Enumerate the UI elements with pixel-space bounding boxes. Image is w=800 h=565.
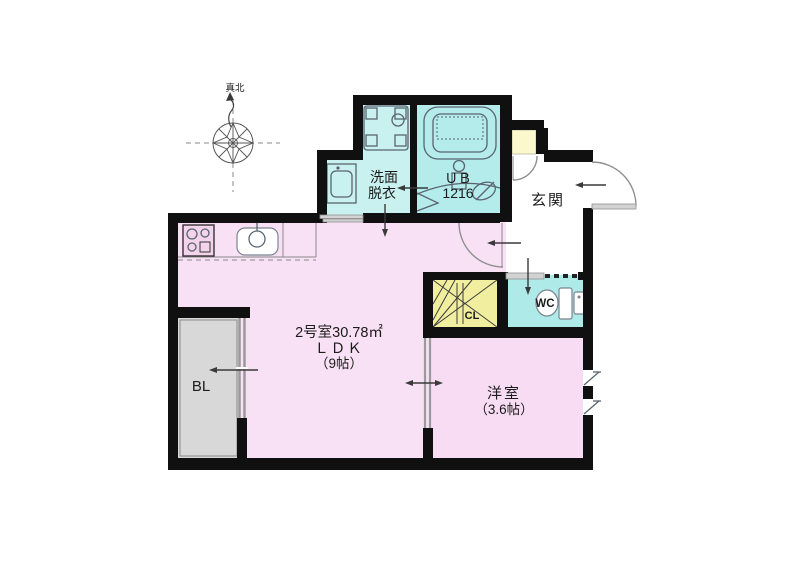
ldk-label-3: （9帖） bbox=[315, 356, 363, 371]
western-window-upper bbox=[583, 370, 601, 386]
unit-bath-label-1: ＵＢ bbox=[445, 171, 472, 186]
western-room-label-1: 洋室 bbox=[487, 385, 521, 402]
ldk-label-1: 2号室30.78㎡ bbox=[295, 324, 383, 341]
unit-bath-label-2: 1216 bbox=[442, 185, 473, 201]
wc-label: WC bbox=[535, 298, 554, 310]
kitchen-sink-icon bbox=[237, 223, 278, 255]
washroom-sliding-door bbox=[320, 215, 363, 222]
entrance-door-arc bbox=[592, 162, 636, 206]
entrance-label: 玄関 bbox=[531, 192, 565, 209]
shoebox bbox=[512, 130, 536, 154]
washroom-label-1: 洗面 bbox=[370, 169, 398, 185]
western-window-lower bbox=[583, 399, 601, 415]
compass-label: 真北 bbox=[225, 82, 245, 94]
washroom-label-2: 脱衣 bbox=[368, 185, 396, 201]
shoebox-door-arc bbox=[513, 156, 537, 180]
entrance-door-leaf bbox=[592, 204, 636, 209]
closet-label: CL bbox=[465, 310, 480, 322]
balcony-label: BL bbox=[192, 378, 210, 395]
entrance-direction-arrow bbox=[575, 182, 606, 188]
ldk-label-2: ＬＤＫ bbox=[314, 341, 364, 357]
compass-icon bbox=[186, 92, 280, 192]
western-room-label-2: （3.6帖） bbox=[474, 402, 533, 417]
floor-plan: 真北 洗面 脱衣 ＵＢ 1216 玄関 2号室30.78㎡ ＬＤＫ （9帖） 洋… bbox=[0, 0, 800, 565]
stove-icon bbox=[183, 225, 214, 256]
